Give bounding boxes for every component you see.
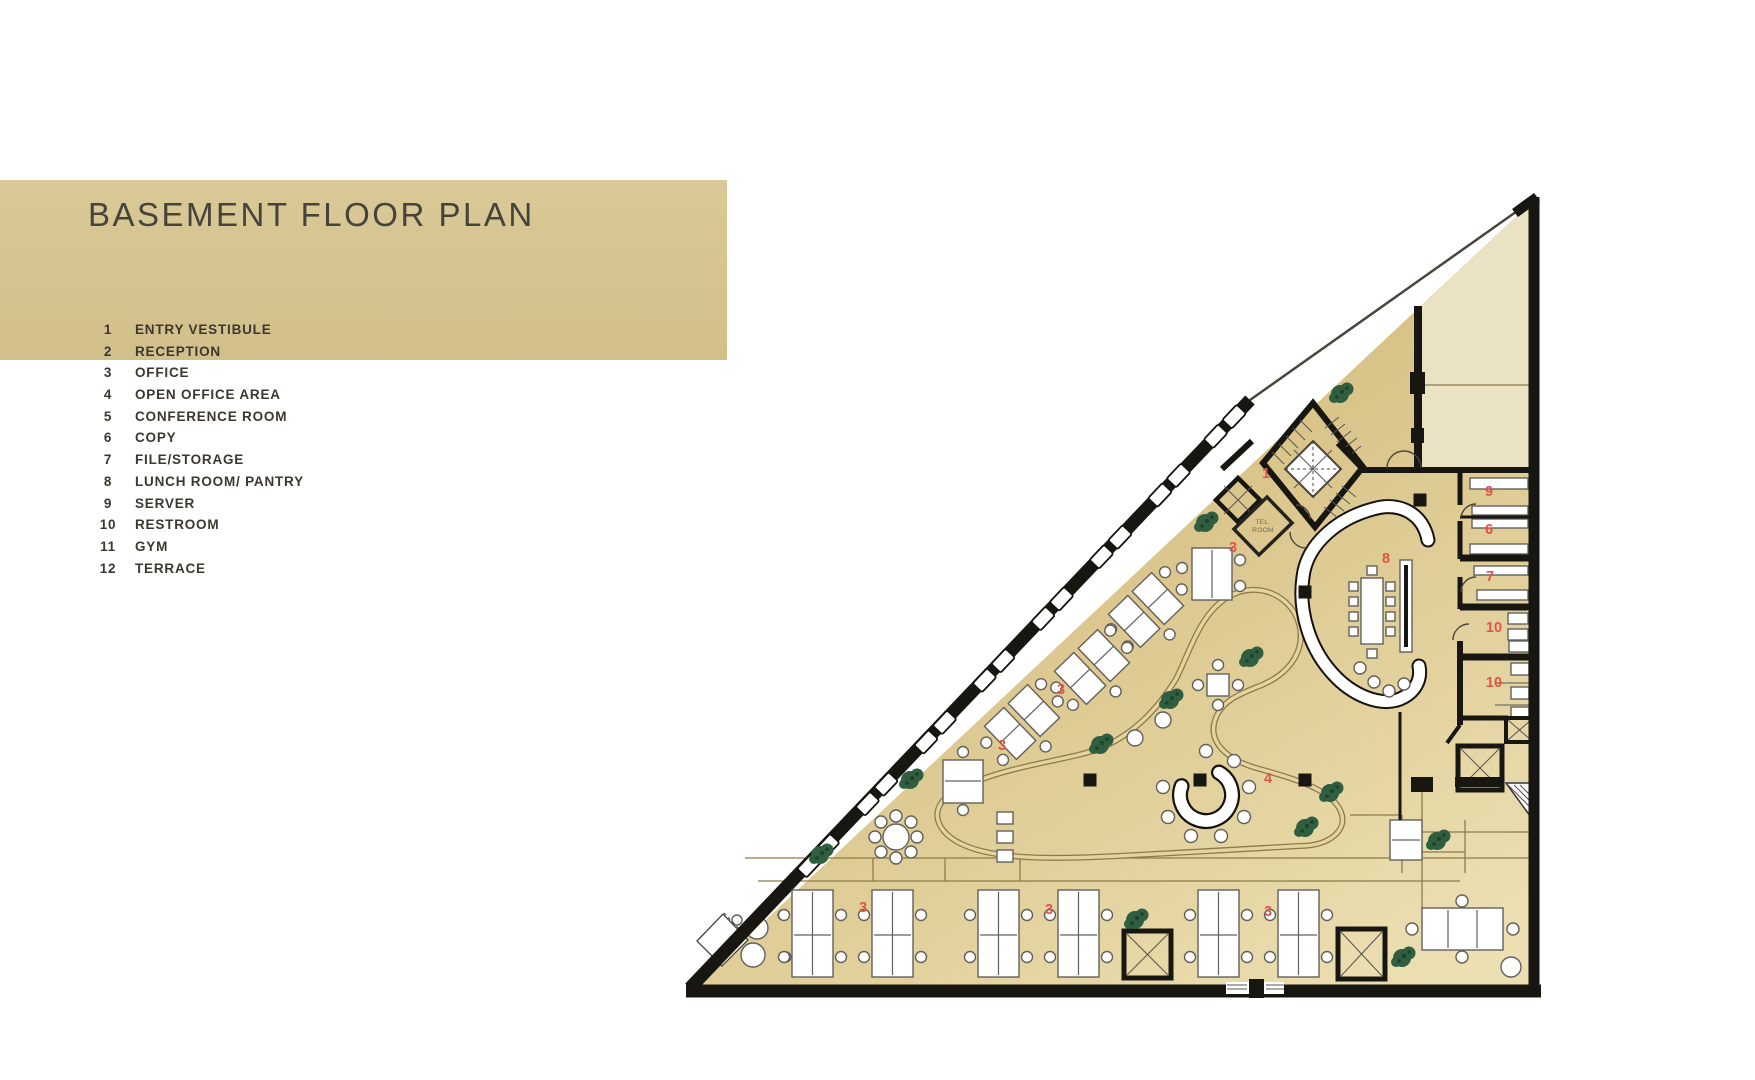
room-number-6: 6 bbox=[1485, 522, 1493, 538]
room-number-3: 3 bbox=[859, 900, 867, 916]
room-number-3: 3 bbox=[1057, 682, 1065, 698]
room-number-3: 3 bbox=[1045, 902, 1053, 918]
page: BASEMENT FLOOR PLAN 1ENTRY VESTIBULE2REC… bbox=[0, 0, 1755, 1080]
column bbox=[1299, 774, 1312, 787]
room-number-10: 10 bbox=[1486, 620, 1502, 636]
room-number-9: 9 bbox=[1485, 484, 1493, 500]
column bbox=[1414, 494, 1427, 507]
room-number-1: 1 bbox=[1262, 466, 1270, 482]
room-number-3: 3 bbox=[1229, 540, 1237, 556]
room-number-3: 3 bbox=[998, 738, 1006, 754]
room-number-7: 7 bbox=[1486, 569, 1494, 585]
room-number-10: 10 bbox=[1486, 675, 1502, 691]
tel-room-label-1: TEL. bbox=[1256, 519, 1271, 526]
column bbox=[1194, 774, 1207, 787]
floor-plan: TEL. ROOM bbox=[0, 0, 1755, 1080]
tel-room-label-2: ROOM bbox=[1252, 527, 1273, 534]
room-number-4: 4 bbox=[1264, 771, 1272, 787]
room-number-8: 8 bbox=[1382, 551, 1390, 567]
room-number-3: 3 bbox=[1264, 904, 1272, 920]
column bbox=[1084, 774, 1097, 787]
column bbox=[1299, 586, 1312, 599]
